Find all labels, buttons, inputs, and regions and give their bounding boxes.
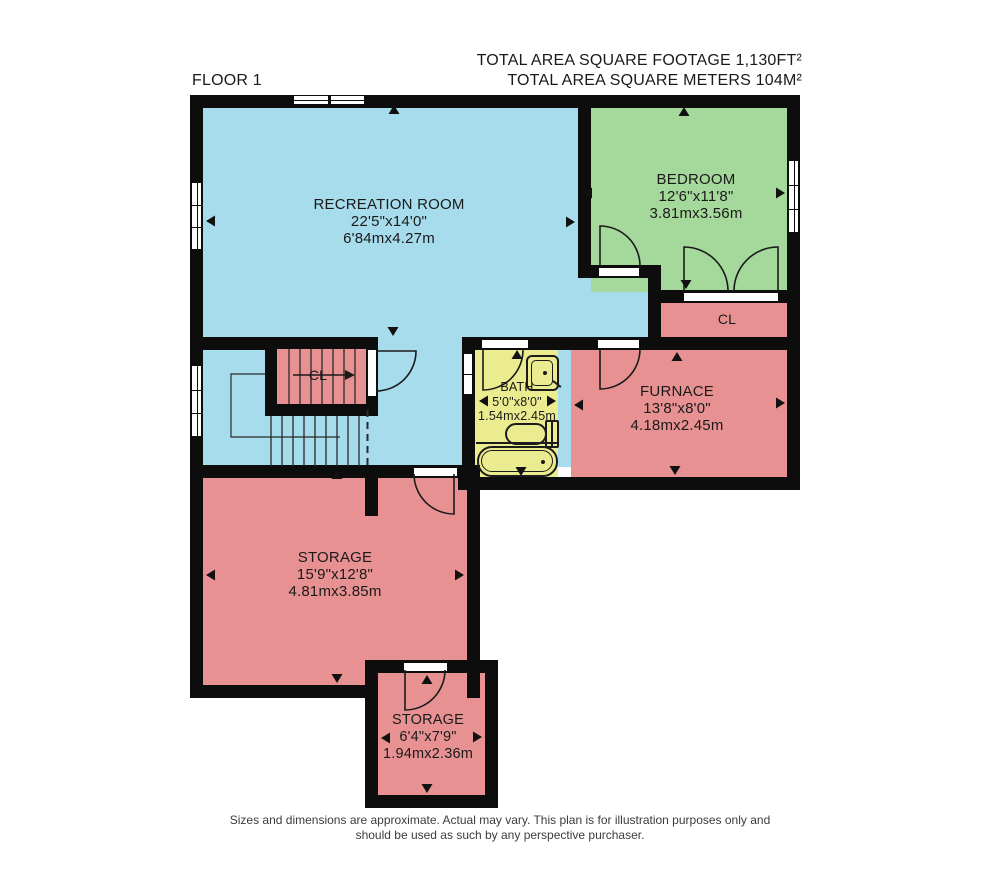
room-name: BATH	[457, 380, 577, 395]
bedroom-label: BEDROOM 12'6"x11'8" 3.81mx3.56m	[596, 171, 796, 222]
closet-label: CL	[677, 311, 777, 328]
room-size-metric: 4.18mx2.45m	[577, 417, 777, 434]
room-name: BEDROOM	[596, 171, 796, 188]
room-size-metric: 6'84mx4.27m	[239, 230, 539, 247]
room-size-imperial: 12'6"x11'8"	[596, 188, 796, 205]
double-door-opening	[683, 292, 779, 302]
door-opening	[598, 267, 640, 277]
wall-segment	[190, 95, 800, 108]
total-area-footage: TOTAL AREA SQUARE FOOTAGE 1,130FT²	[477, 52, 802, 70]
stairs-closet-label: CL	[298, 367, 338, 384]
door-opening	[367, 349, 377, 397]
wall-segment	[365, 465, 378, 516]
wall-segment	[190, 337, 277, 350]
disclaimer-line-1: Sizes and dimensions are approximate. Ac…	[0, 813, 1000, 827]
room-size-metric: 1.54mx2.45m	[457, 409, 577, 424]
recreation-label: RECREATION ROOM 22'5"x14'0" 6'84mx4.27m	[239, 196, 539, 247]
storage-small-label: STORAGE 6'4"x7'9" 1.94mx2.36m	[358, 712, 498, 763]
room-name: STORAGE	[358, 712, 498, 729]
room-size-metric: 4.81mx3.85m	[235, 583, 435, 600]
wall-segment	[558, 337, 800, 350]
room-size-metric: 1.94mx2.36m	[358, 746, 498, 763]
wall-segment	[578, 95, 591, 278]
disclaimer-line-2: should be used as such by any perspectiv…	[0, 828, 1000, 842]
total-area-meters: TOTAL AREA SQUARE METERS 104M²	[507, 72, 802, 90]
bath-divider-line	[476, 442, 558, 444]
room-size-metric: 3.81mx3.56m	[596, 205, 796, 222]
wall-segment	[365, 795, 498, 808]
storage-main-label: STORAGE 15'9"x12'8" 4.81mx3.85m	[235, 549, 435, 600]
window	[293, 95, 365, 105]
toilet-tank-icon	[545, 420, 559, 448]
wall-segment	[190, 685, 378, 698]
room-size-imperial: 15'9"x12'8"	[235, 566, 435, 583]
floor-plan-page: FLOOR 1 TOTAL AREA SQUARE FOOTAGE 1,130F…	[0, 0, 1000, 886]
bath-label: BATH 5'0"x8'0" 1.54mx2.45m	[457, 380, 577, 424]
window	[191, 182, 202, 250]
floor-label: FLOOR 1	[192, 72, 262, 90]
room-size-imperial: 22'5"x14'0"	[239, 213, 539, 230]
wall-segment	[458, 477, 800, 490]
room-size-imperial: 6'4"x7'9"	[358, 729, 498, 746]
room-name: RECREATION ROOM	[239, 196, 539, 213]
bathtub-icon	[477, 446, 558, 477]
door-opening	[403, 662, 448, 672]
room-size-imperial: 5'0"x8'0"	[457, 395, 577, 410]
door-opening	[597, 339, 640, 349]
room-name: STORAGE	[235, 549, 435, 566]
room-name: FURNACE	[577, 383, 777, 400]
room-size-imperial: 13'8"x8'0"	[577, 400, 777, 417]
door-opening	[413, 467, 458, 477]
door-opening	[481, 339, 529, 349]
window	[191, 365, 202, 437]
furnace-label: FURNACE 13'8"x8'0" 4.18mx2.45m	[577, 383, 777, 434]
